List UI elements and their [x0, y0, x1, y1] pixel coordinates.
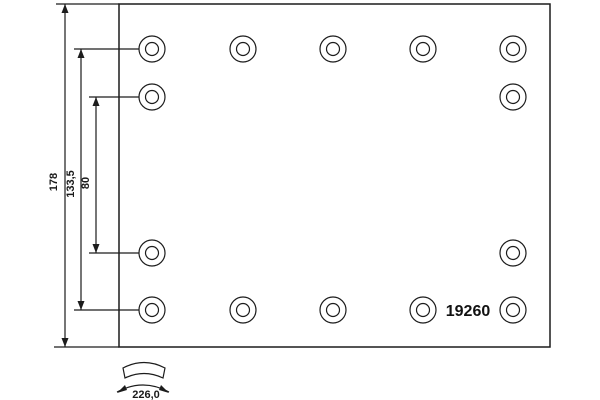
technical-drawing-canvas: 178 133,5 80: [0, 0, 600, 400]
rivet-hole: [320, 36, 346, 62]
arc-arrow-left-icon: [117, 385, 127, 393]
arrow-up-icon: [78, 49, 85, 58]
brake-lining-drawing: 178 133,5 80: [0, 0, 600, 400]
dim-label-overall-width: 178: [48, 173, 60, 191]
rivet-hole: [410, 36, 436, 62]
rivet-hole: [230, 36, 256, 62]
rivet-hole: [139, 240, 165, 266]
arrow-down-icon: [78, 301, 85, 310]
arrow-up-icon: [62, 4, 69, 13]
rivet-hole: [320, 297, 346, 323]
rivet-hole: [500, 297, 526, 323]
lining-section-band: [123, 363, 165, 379]
arrow-down-icon: [93, 244, 100, 253]
dim-label-arc-width: 226,0: [132, 389, 160, 400]
dim-label-outer-row-spacing: 133,5: [65, 170, 77, 198]
arc-arrow-right-icon: [159, 385, 169, 393]
rivet-hole: [139, 36, 165, 62]
rivet-hole: [139, 84, 165, 110]
rivet-hole: [500, 84, 526, 110]
rivet-hole: [500, 240, 526, 266]
rivet-row-upper-inner: [139, 84, 526, 110]
rivet-hole: [500, 36, 526, 62]
part-number-label: 19260: [446, 303, 491, 320]
rivet-hole: [410, 297, 436, 323]
rivet-row-lower-inner: [139, 240, 526, 266]
dim-label-inner-row-spacing: 80: [80, 177, 92, 189]
rivet-hole: [230, 297, 256, 323]
arrow-down-icon: [62, 338, 69, 347]
dimension-80: 80: [80, 97, 100, 253]
arrow-up-icon: [93, 97, 100, 106]
arc-section-symbol: 226,0: [117, 363, 169, 400]
rivet-hole: [139, 297, 165, 323]
rivet-row-top: [139, 36, 526, 62]
